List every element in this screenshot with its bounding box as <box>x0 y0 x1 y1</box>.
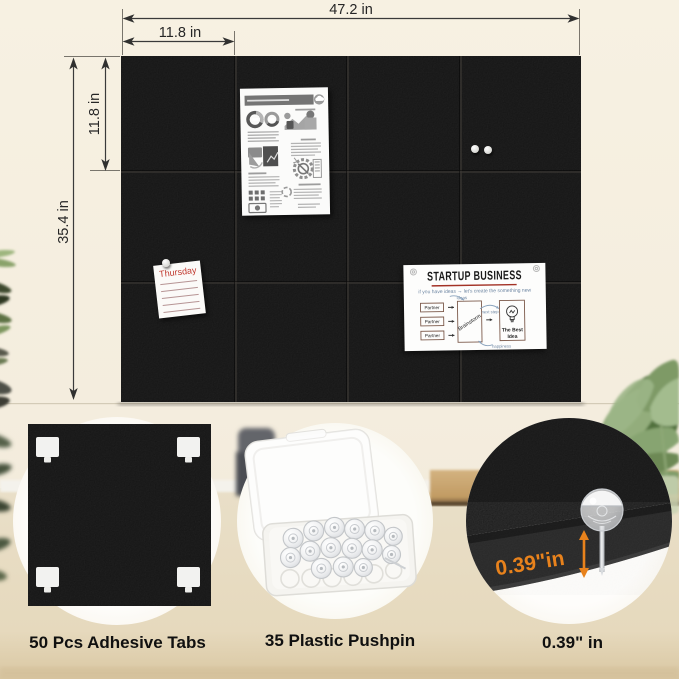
svg-text:Brainstorm: Brainstorm <box>457 313 483 332</box>
svg-text:11.8 in: 11.8 in <box>87 93 103 135</box>
svg-text:Partner: Partner <box>425 319 441 324</box>
svg-text:Partner: Partner <box>424 305 440 310</box>
svg-text:happiness: happiness <box>492 343 511 348</box>
svg-text:if you have ideas → let's crea: if you have ideas → let's create the som… <box>418 288 531 296</box>
svg-text:Idea: Idea <box>507 334 517 340</box>
svg-text:next step: next step <box>482 309 500 314</box>
svg-text:11.8 in: 11.8 in <box>159 25 201 41</box>
svg-text:The Best: The Best <box>502 327 524 333</box>
svg-text:35.4 in: 35.4 in <box>56 200 72 244</box>
svg-text:47.2 in: 47.2 in <box>329 2 373 18</box>
svg-text:STARTUP BUSINESS: STARTUP BUSINESS <box>427 269 522 284</box>
svg-text:Partner: Partner <box>425 333 441 338</box>
